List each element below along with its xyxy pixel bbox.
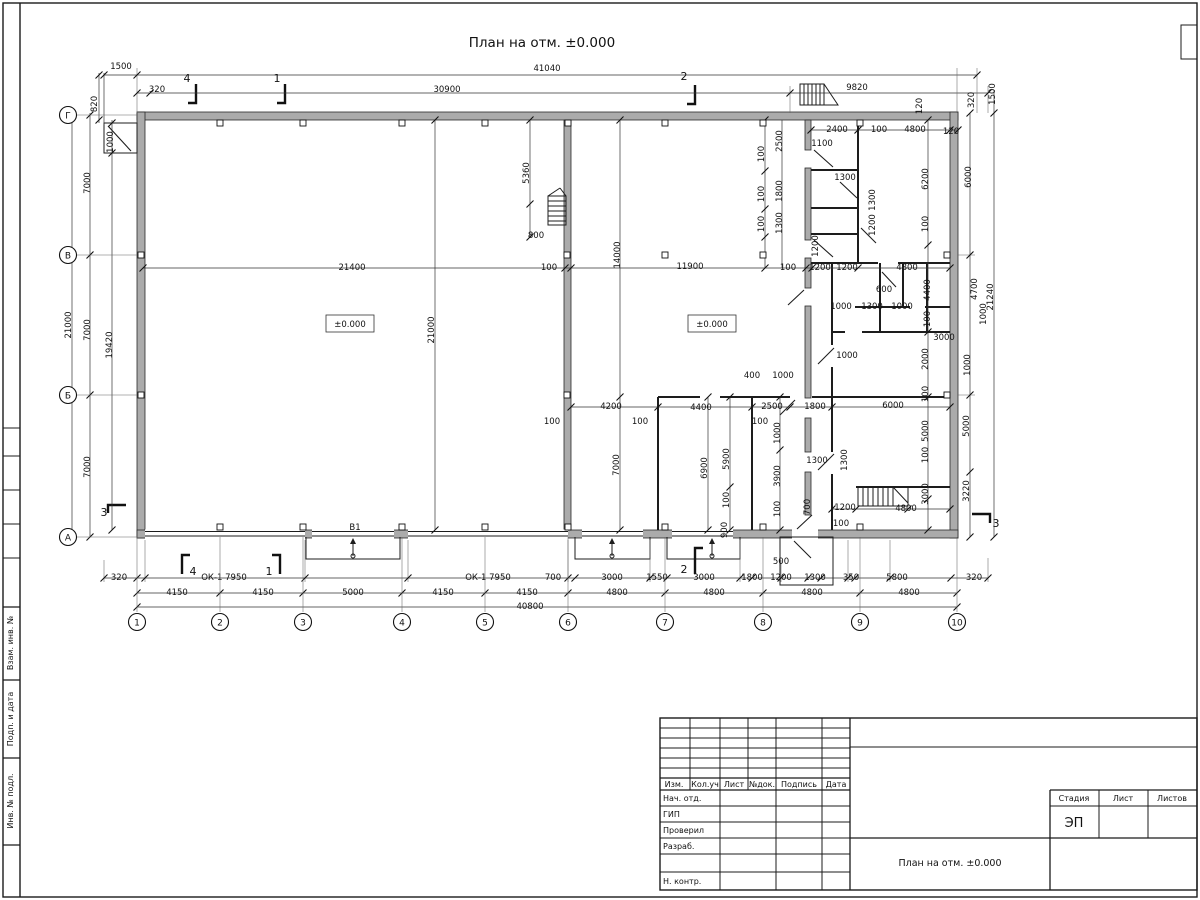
rev-col-podpis: Подпись xyxy=(781,780,817,789)
dim-label: 1300 xyxy=(834,173,856,183)
axis-bubble-label: 6 xyxy=(565,619,571,629)
dim-label: 5000 xyxy=(962,415,972,437)
sheet-frame: Взам. инв. № Подп. и дата Инв. № подл. xyxy=(3,3,1197,897)
sheet-header: Лист xyxy=(1113,794,1134,803)
dim-label: 700 xyxy=(803,499,813,515)
column-marker xyxy=(944,392,950,398)
dim-label: 1800 xyxy=(804,402,826,412)
dim-label: 350 xyxy=(843,573,859,583)
dim-label: 2 xyxy=(681,70,688,83)
ramp-icon xyxy=(800,84,838,105)
dim-label: 820 xyxy=(90,96,100,112)
stairs-icon-mid xyxy=(548,188,566,225)
dim-label: 4200 xyxy=(600,402,622,412)
window-ok1-left xyxy=(145,530,305,539)
dim-label: 320 xyxy=(149,85,165,95)
dim-label: 100 xyxy=(921,447,931,463)
dim-label: 1550 xyxy=(646,573,668,583)
dim-label: 100 xyxy=(757,146,767,162)
dim-label: 11900 xyxy=(676,262,703,272)
stage-header: Стадия xyxy=(1059,794,1090,803)
dim-label: 120 xyxy=(915,98,925,114)
axis-bubble-label: 4 xyxy=(399,619,405,629)
dim-label: 600 xyxy=(876,285,892,295)
sheets-header: Листов xyxy=(1157,794,1187,803)
dim-label: 5800 xyxy=(886,573,908,583)
column-marker xyxy=(399,120,405,126)
dim-label: 1200 xyxy=(836,263,858,273)
dim-label: 3000 xyxy=(933,333,955,343)
loading-dock-3 xyxy=(667,537,740,559)
dim-label: ОК-1 7950 xyxy=(465,573,511,583)
dim-label: 7000 xyxy=(612,454,622,476)
dimension-lines xyxy=(72,68,994,607)
strip-label-vzam: Взам. инв. № xyxy=(6,615,15,670)
partitions-layer xyxy=(108,120,950,558)
role-nach-otd: Нач. отд. xyxy=(663,794,701,803)
dim-label: 4400 xyxy=(690,403,712,413)
dim-label: 30900 xyxy=(433,85,460,95)
dim-label: 6000 xyxy=(964,166,974,188)
column-marker xyxy=(300,120,306,126)
column-marker xyxy=(565,524,571,530)
dim-label: 4800 xyxy=(904,125,926,135)
dim-label: 100 xyxy=(923,311,933,327)
dim-label: 4150 xyxy=(166,588,188,598)
column-marker xyxy=(565,120,571,126)
floor-plan-drawing: Взам. инв. № Подп. и дата Инв. № подл. П… xyxy=(0,0,1200,900)
dim-label: 100 xyxy=(921,386,931,402)
dim-label: 100 xyxy=(871,125,887,135)
dim-label: 800 xyxy=(528,231,544,241)
corner-stamp-box xyxy=(1181,25,1197,59)
axis-bubble-label: 3 xyxy=(300,619,306,629)
dim-label: 320 xyxy=(966,573,982,583)
dim-label: 2 xyxy=(681,563,688,576)
dim-label: ±0.000 xyxy=(334,320,365,330)
dim-label: 100 xyxy=(780,263,796,273)
dim-label: 3 xyxy=(993,517,1000,530)
dim-label: 6000 xyxy=(882,401,904,411)
dim-label: 3900 xyxy=(773,465,783,487)
role-razrab: Разраб. xyxy=(663,842,694,851)
dim-label: 3000 xyxy=(921,483,931,505)
dim-label: 400 xyxy=(744,371,760,381)
dim-label: 3 xyxy=(101,506,108,519)
strip-label-inv: Инв. № подл. xyxy=(6,773,15,828)
dim-label: 1 xyxy=(266,565,273,578)
dim-label: 1500 xyxy=(110,62,132,72)
column-marker xyxy=(300,524,306,530)
dim-label: 1300 xyxy=(840,449,850,471)
dim-label: 5000 xyxy=(342,588,364,598)
dim-label: 1300 xyxy=(775,212,785,234)
column-marker xyxy=(564,252,570,258)
dim-label: 500 xyxy=(773,557,789,567)
column-marker xyxy=(857,120,863,126)
page-title: План на отм. ±0.000 xyxy=(469,35,615,51)
column-marker xyxy=(662,524,668,530)
dim-label: 19420 xyxy=(105,331,115,358)
dim-label: 1300 xyxy=(804,573,826,583)
loading-dock-2 xyxy=(575,537,650,559)
dim-label: 2500 xyxy=(775,130,785,152)
axis-bubble-label: 7 xyxy=(662,619,668,629)
dim-label: 1800 xyxy=(741,573,763,583)
rev-col-data: Дата xyxy=(826,780,847,789)
dim-label: 1000 xyxy=(773,422,783,444)
dim-label: 6900 xyxy=(700,457,710,479)
column-marker xyxy=(760,120,766,126)
title-block: Изм. Кол.уч Лист №док. Подпись Дата Нач.… xyxy=(660,718,1197,890)
axis-bubble-label: А xyxy=(65,534,72,544)
dim-label: 7000 xyxy=(83,456,93,478)
dim-label: 4800 xyxy=(898,588,920,598)
dim-label: 2400 xyxy=(826,125,848,135)
column-markers xyxy=(138,120,950,530)
axis-bubble-label: Б xyxy=(65,392,71,402)
column-marker xyxy=(217,524,223,530)
axis-bubble-label: 2 xyxy=(217,619,223,629)
axis-bubble-label: 8 xyxy=(760,619,766,629)
dim-label: 100 xyxy=(541,263,557,273)
dim-label: 4800 xyxy=(801,588,823,598)
dim-label: 100 xyxy=(722,492,732,508)
dim-label: 2500 xyxy=(761,402,783,412)
dim-label: 4150 xyxy=(252,588,274,598)
dim-label: 4800 xyxy=(896,263,918,273)
axis-bubble-label: В xyxy=(65,252,71,262)
dim-label: 120 xyxy=(943,127,959,137)
dim-label: 4 xyxy=(190,565,197,578)
column-marker xyxy=(482,524,488,530)
dim-label: 1000 xyxy=(836,351,858,361)
column-marker xyxy=(662,252,668,258)
strip-label-podp: Подп. и дата xyxy=(6,692,15,747)
column-marker xyxy=(217,120,223,126)
dim-label: 4800 xyxy=(895,504,917,514)
column-marker xyxy=(399,524,405,530)
dim-label: 2000 xyxy=(921,348,931,370)
dim-label: 9820 xyxy=(846,83,868,93)
dim-label: 5900 xyxy=(722,448,732,470)
dim-label: 100 xyxy=(752,417,768,427)
dim-label: 100 xyxy=(544,417,560,427)
dim-label: 5000 xyxy=(921,420,931,442)
dim-label: 1000 xyxy=(979,303,989,325)
column-marker xyxy=(482,120,488,126)
dim-label: 4800 xyxy=(606,588,628,598)
gate-opening-2 xyxy=(582,530,643,539)
column-marker xyxy=(944,252,950,258)
doc-title: План на отм. ±0.000 xyxy=(898,858,1001,869)
dim-label: 1300 xyxy=(861,302,883,312)
dim-label: 1000 xyxy=(772,371,794,381)
dim-label: 3000 xyxy=(693,573,715,583)
dim-label: 7000 xyxy=(83,319,93,341)
left-attribute-strip: Взам. инв. № Подп. и дата Инв. № подл. xyxy=(3,428,20,845)
dim-label: 1800 xyxy=(775,180,785,202)
dim-label: 1200 xyxy=(809,263,831,273)
dim-label: 4400 xyxy=(923,279,933,301)
dim-label: 1200 xyxy=(770,573,792,583)
dim-label: 1000 xyxy=(830,302,852,312)
dim-label: 4150 xyxy=(432,588,454,598)
dim-label: 1200 xyxy=(811,235,821,257)
dim-label: 900 xyxy=(720,522,730,538)
dim-label: 40800 xyxy=(516,602,543,612)
dim-label: 1000 xyxy=(891,302,913,312)
window-ok1-right xyxy=(408,530,568,539)
dim-label: 5360 xyxy=(522,162,532,184)
axis-bubbles: 12345678910ГВБА xyxy=(60,107,966,631)
dim-label: 1200 xyxy=(834,503,856,513)
column-marker xyxy=(138,392,144,398)
rev-col-izm: Изм. xyxy=(665,780,684,789)
role-proveril: Проверил xyxy=(663,826,704,835)
dim-label: 21000 xyxy=(64,311,74,338)
column-marker xyxy=(760,524,766,530)
dim-label: 1000 xyxy=(963,354,973,376)
dim-label: 100 xyxy=(921,216,931,232)
dim-label: 3220 xyxy=(962,480,972,502)
dim-label: 4150 xyxy=(516,588,538,598)
dim-label: 4 xyxy=(184,72,191,85)
dim-label: 21400 xyxy=(338,263,365,273)
dim-label: 4800 xyxy=(703,588,725,598)
dim-label: В1 xyxy=(349,523,360,533)
dim-label: 14000 xyxy=(613,241,623,268)
dim-label: 100 xyxy=(757,216,767,232)
dim-label: 1300 xyxy=(868,189,878,211)
dim-label: 6200 xyxy=(921,168,931,190)
dim-label: 100 xyxy=(833,519,849,529)
dim-label: 4700 xyxy=(970,278,980,300)
dim-label: 320 xyxy=(111,573,127,583)
axis-bubble-label: 10 xyxy=(951,619,963,629)
dim-label: 700 xyxy=(545,573,561,583)
axis-bubble-label: 9 xyxy=(857,619,863,629)
dim-label: 1100 xyxy=(811,139,833,149)
axis-bubble-label: Г xyxy=(65,112,71,122)
axis-bubble-label: 5 xyxy=(482,619,488,629)
role-nkontr: Н. контр. xyxy=(663,877,701,886)
rev-col-list: Лист xyxy=(724,780,745,789)
column-marker xyxy=(857,524,863,530)
column-marker xyxy=(760,252,766,258)
dim-label: 320 xyxy=(967,92,977,108)
dim-label: 41040 xyxy=(533,64,560,74)
dim-label: 1500 xyxy=(988,83,998,105)
role-gip: ГИП xyxy=(663,810,680,819)
rev-col-koluch: Кол.уч xyxy=(691,780,719,789)
column-marker xyxy=(662,120,668,126)
loading-dock-v1 xyxy=(306,537,400,559)
dim-label: 1300 xyxy=(806,456,828,466)
axis-bubble-label: 1 xyxy=(134,619,140,629)
rev-col-ndok: №док. xyxy=(749,780,775,789)
drawing-sheet: Взам. инв. № Подп. и дата Инв. № подл. П… xyxy=(0,0,1200,900)
dim-label: 1200 xyxy=(868,214,878,236)
dim-label: ±0.000 xyxy=(696,320,727,330)
dim-label: 1 xyxy=(274,72,281,85)
dim-label: 100 xyxy=(632,417,648,427)
dim-label: 21000 xyxy=(427,316,437,343)
column-marker xyxy=(564,392,570,398)
column-marker xyxy=(138,252,144,258)
dim-label: ОК-1 7950 xyxy=(201,573,247,583)
dim-label: 100 xyxy=(773,501,783,517)
dim-label: 3000 xyxy=(601,573,623,583)
dim-label: 7000 xyxy=(83,172,93,194)
dim-label: 1000 xyxy=(106,131,116,153)
dim-label: 100 xyxy=(757,186,767,202)
stage-value: ЭП xyxy=(1065,816,1084,831)
